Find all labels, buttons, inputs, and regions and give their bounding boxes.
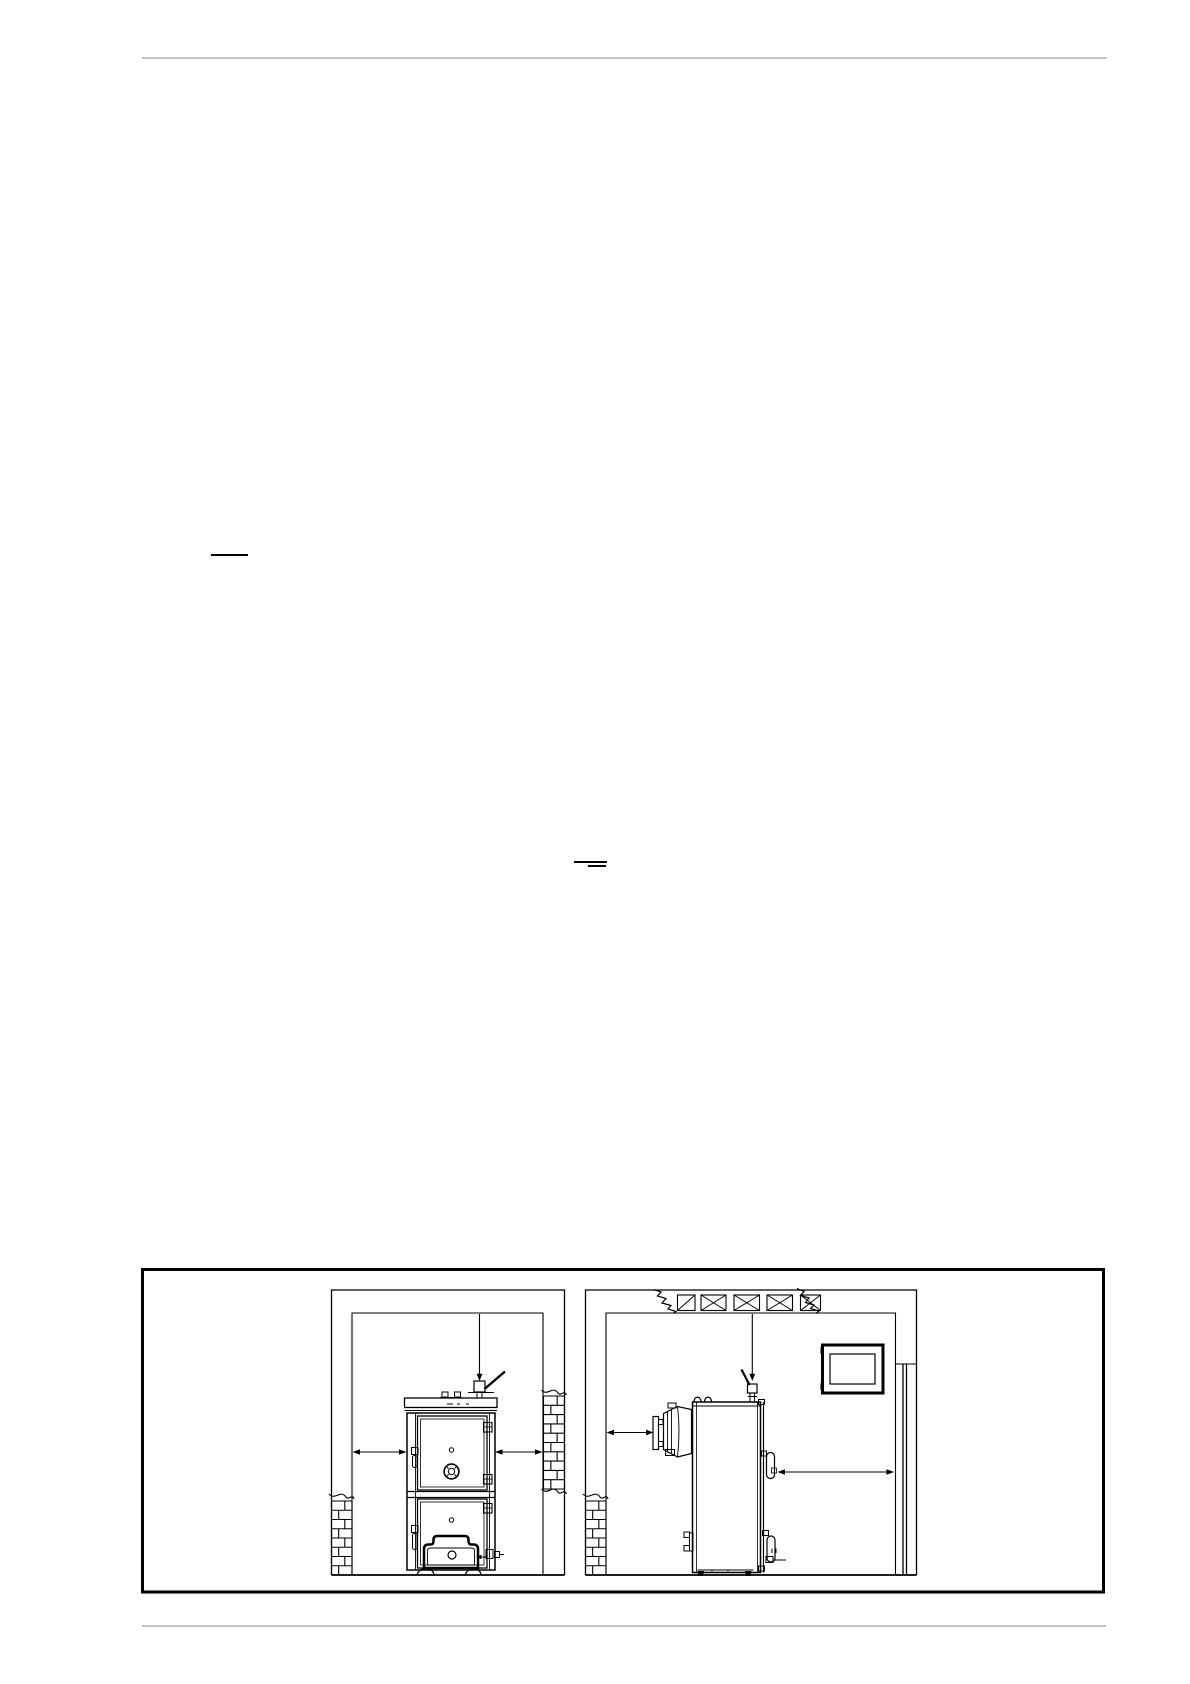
corner-flue-pipe (896, 1364, 917, 1575)
right-clearance-arrow (495, 1449, 543, 1455)
wall-break-squiggle (654, 1290, 676, 1314)
brick-wall-left (586, 1501, 607, 1575)
underline-mark (574, 861, 607, 863)
installation-clearance-figure (141, 1267, 1106, 1595)
document-page (0, 0, 1190, 1684)
figure-frame (143, 1270, 1104, 1593)
ash-door (424, 1536, 478, 1568)
wall-break-wave (583, 1494, 608, 1499)
ceiling-ventilation-grilles (654, 1289, 821, 1314)
boiler-foot (745, 1571, 752, 1576)
footer-rule (142, 1625, 1106, 1627)
brick-wall-left (332, 1501, 353, 1575)
arrowhead-down (749, 1374, 755, 1381)
figure-drawing (141, 1267, 1106, 1595)
header-rule (142, 57, 1107, 59)
boiler-foot (698, 1571, 705, 1576)
safety-valve-with-lever (440, 1372, 505, 1399)
boiler-front (405, 1398, 505, 1575)
drain-fitting (477, 1550, 505, 1560)
wall-break-wave (542, 1489, 567, 1494)
burner-unit (653, 1403, 692, 1457)
rear-clearance-arrow (778, 1469, 895, 1475)
lower-right-fittings (763, 1531, 787, 1563)
brick-wall-right (544, 1396, 565, 1489)
left-clearance-arrow (353, 1449, 407, 1455)
room-inner-wall (606, 1313, 896, 1575)
room-outer-wall (332, 1290, 565, 1575)
window (821, 1345, 884, 1393)
front-clearance-arrow (607, 1430, 654, 1436)
door-knob (449, 1448, 453, 1452)
arrowhead-down (477, 1374, 483, 1381)
panel-front-view (329, 1290, 567, 1575)
underline-mark (588, 865, 606, 867)
draft-regulator (444, 1464, 459, 1479)
underline-mark (211, 554, 248, 556)
wall-break-wave (329, 1494, 354, 1499)
side-latch (684, 1532, 693, 1551)
wall-break-wave (542, 1390, 567, 1395)
panel-side-view (583, 1289, 917, 1577)
boiler-side (653, 1397, 786, 1576)
